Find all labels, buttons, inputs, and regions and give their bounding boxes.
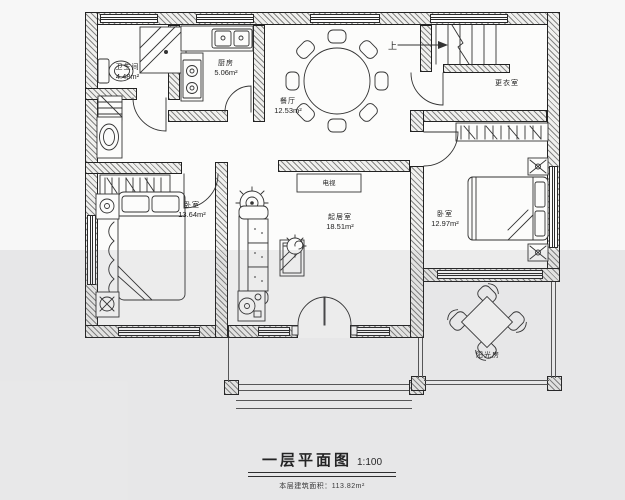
plan-area-label: 本层建筑面积：113.82m²	[232, 481, 412, 491]
nightstand	[96, 292, 119, 317]
room-label-dining: 餐厅 12.53m²	[258, 96, 318, 115]
room-label-living: 起居室 18.51m²	[310, 212, 370, 231]
stairs-direction-label: 上	[388, 41, 397, 51]
room-area: 4.48m²	[100, 72, 155, 81]
room-name: 卧室	[415, 209, 475, 219]
room-label-kitchen: 厨房 5.06m²	[198, 58, 254, 77]
wardrobe	[456, 123, 548, 141]
stairs: 上	[388, 25, 496, 64]
room-label-bedroom-left: 卧室 13.64m²	[162, 200, 222, 219]
room-label-sunroom: 阳光房	[458, 350, 518, 360]
bed	[468, 177, 548, 240]
room-name: 卫生间	[100, 62, 155, 72]
room-area: 13.64m²	[162, 210, 222, 219]
tv-label: 电视	[300, 177, 358, 187]
door-swing	[225, 86, 251, 112]
nightstand	[528, 244, 548, 261]
room-name: 更衣室	[477, 78, 537, 88]
room-area: 5.06m²	[198, 68, 254, 77]
room-label-bathroom: 卫生间 4.48m²	[100, 62, 155, 81]
room-area: 12.97m²	[415, 219, 475, 228]
title-underline	[248, 472, 396, 477]
room-name: 厨房	[198, 58, 254, 68]
door-swing	[133, 98, 166, 131]
wash-basin	[97, 117, 122, 158]
room-area: 12.53m²	[258, 106, 318, 115]
title-block: 一层平面图1:100 本层建筑面积：113.82m²	[232, 449, 412, 491]
room-area: 18.51m²	[310, 222, 370, 231]
record-player	[238, 291, 265, 321]
plan-symbols: 上	[0, 0, 625, 500]
room-name: 起居室	[310, 212, 370, 222]
kitchen-sink	[181, 26, 253, 51]
room-name: 餐厅	[258, 96, 318, 106]
french-door	[292, 297, 357, 335]
washing-machine	[98, 96, 122, 120]
plan-scale: 1:100	[357, 457, 382, 468]
sofa	[239, 206, 268, 304]
door-swing	[424, 132, 458, 166]
room-name: 阳光房	[458, 350, 518, 360]
room-label-bedroom-right: 卧室 12.97m²	[415, 209, 475, 228]
room-label-dressing: 更衣室	[477, 78, 537, 88]
dining-table-set	[286, 30, 388, 132]
room-name: 卧室	[162, 200, 222, 210]
break-line	[452, 25, 469, 64]
floor-plan: 上	[0, 0, 625, 500]
plan-title: 一层平面图	[262, 452, 352, 469]
nightstand	[96, 194, 119, 219]
nightstand	[528, 158, 548, 175]
door-swing	[411, 73, 443, 105]
